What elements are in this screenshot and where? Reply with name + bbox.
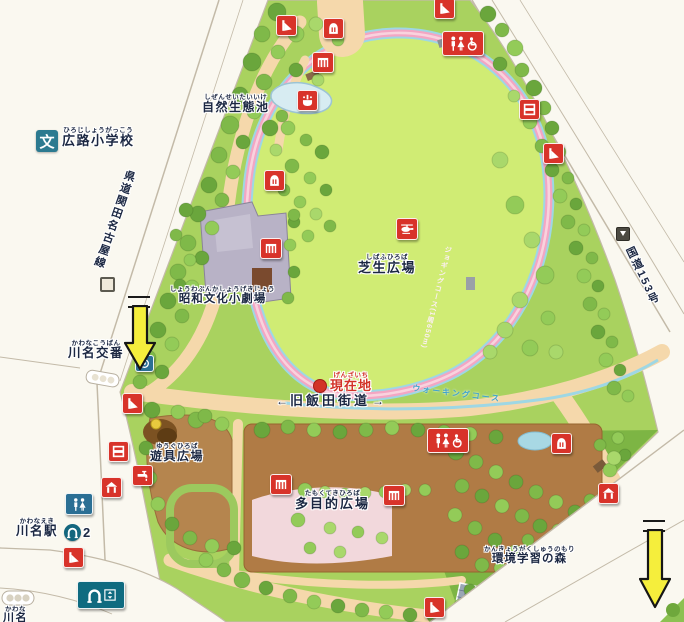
slide-icon-top-entrance (434, 0, 455, 19)
slide-icon-north (276, 15, 297, 36)
toilet-icon-west (65, 493, 93, 515)
pergola-icon-multi-west (270, 474, 292, 495)
park-map-drawing (0, 0, 684, 622)
arbor-icon-west (264, 170, 285, 191)
shelter-icon-forest (598, 483, 619, 504)
horizontal-bar-icon-east (519, 99, 540, 120)
arbor-icon-north (323, 18, 344, 39)
toilet-icon-northeast (442, 31, 484, 56)
subway-sign-icon (77, 581, 125, 609)
kiosk-icon (312, 52, 334, 73)
pergola-icon-multi-east (383, 485, 405, 506)
prefectural-road-shield-icon (100, 277, 115, 292)
slide-icon-west (122, 393, 143, 414)
subway-station-mark: 2 (64, 524, 90, 541)
label-kawana-corner: かわな 川名 (3, 606, 28, 622)
route-153-shield-icon (616, 227, 630, 241)
label-elementary-school: ひろじしょうがっこう 広路小学校 (62, 127, 135, 148)
shelter-icon-west (101, 477, 122, 498)
label-environment-forest: かんきょうがくしゅうのもり 環境学習の森 (484, 546, 575, 565)
label-playground-plaza: ゆうぐひろば 遊具広場 (150, 443, 204, 463)
school-symbol: 文 (36, 130, 58, 152)
toilet-icon-center (427, 428, 469, 453)
slide-icon-south (424, 597, 445, 618)
crosswalk-south (2, 591, 34, 605)
stage-icon (260, 238, 282, 259)
subway-logo-icon (64, 524, 81, 541)
park-map: 文 ひろじしょうがっこう 広路小学校 しぜんせいたいいけ 自然生態池 県道関田名… (0, 0, 684, 622)
label-old-iida-road: ← 旧飯田街道 → (276, 394, 384, 408)
label-multipurpose-plaza: たもくてきひろば 多目的広場 (295, 490, 370, 511)
label-lawn-plaza: しばふひろば 芝生広場 (358, 254, 416, 275)
current-location-dot (313, 379, 327, 393)
faucet-icon (132, 465, 153, 486)
entrance-arrow-east (639, 529, 671, 614)
horizontal-bar-icon-west (108, 441, 129, 462)
forest-pond (518, 432, 552, 450)
label-current-location: げんざいち 現在地 (330, 372, 372, 393)
label-nature-pond: しぜんせいたいいけ 自然生態池 (202, 94, 270, 114)
entrance-arrow-west (124, 305, 156, 376)
slide-icon-station (63, 547, 84, 568)
station-exit-number: 2 (83, 525, 90, 540)
helipad-icon (396, 218, 418, 240)
fountain-icon-pond (297, 90, 318, 111)
label-kawana-station: かわなえき 川名駅 (16, 518, 58, 539)
label-police-box: かわなこうばん 川名交番 (68, 340, 124, 361)
arbor-icon-forest (551, 433, 572, 454)
label-theater: しょうわぶんかしょうげきじょう 昭和文化小劇場 (170, 286, 275, 305)
slide-icon-east (543, 143, 564, 164)
